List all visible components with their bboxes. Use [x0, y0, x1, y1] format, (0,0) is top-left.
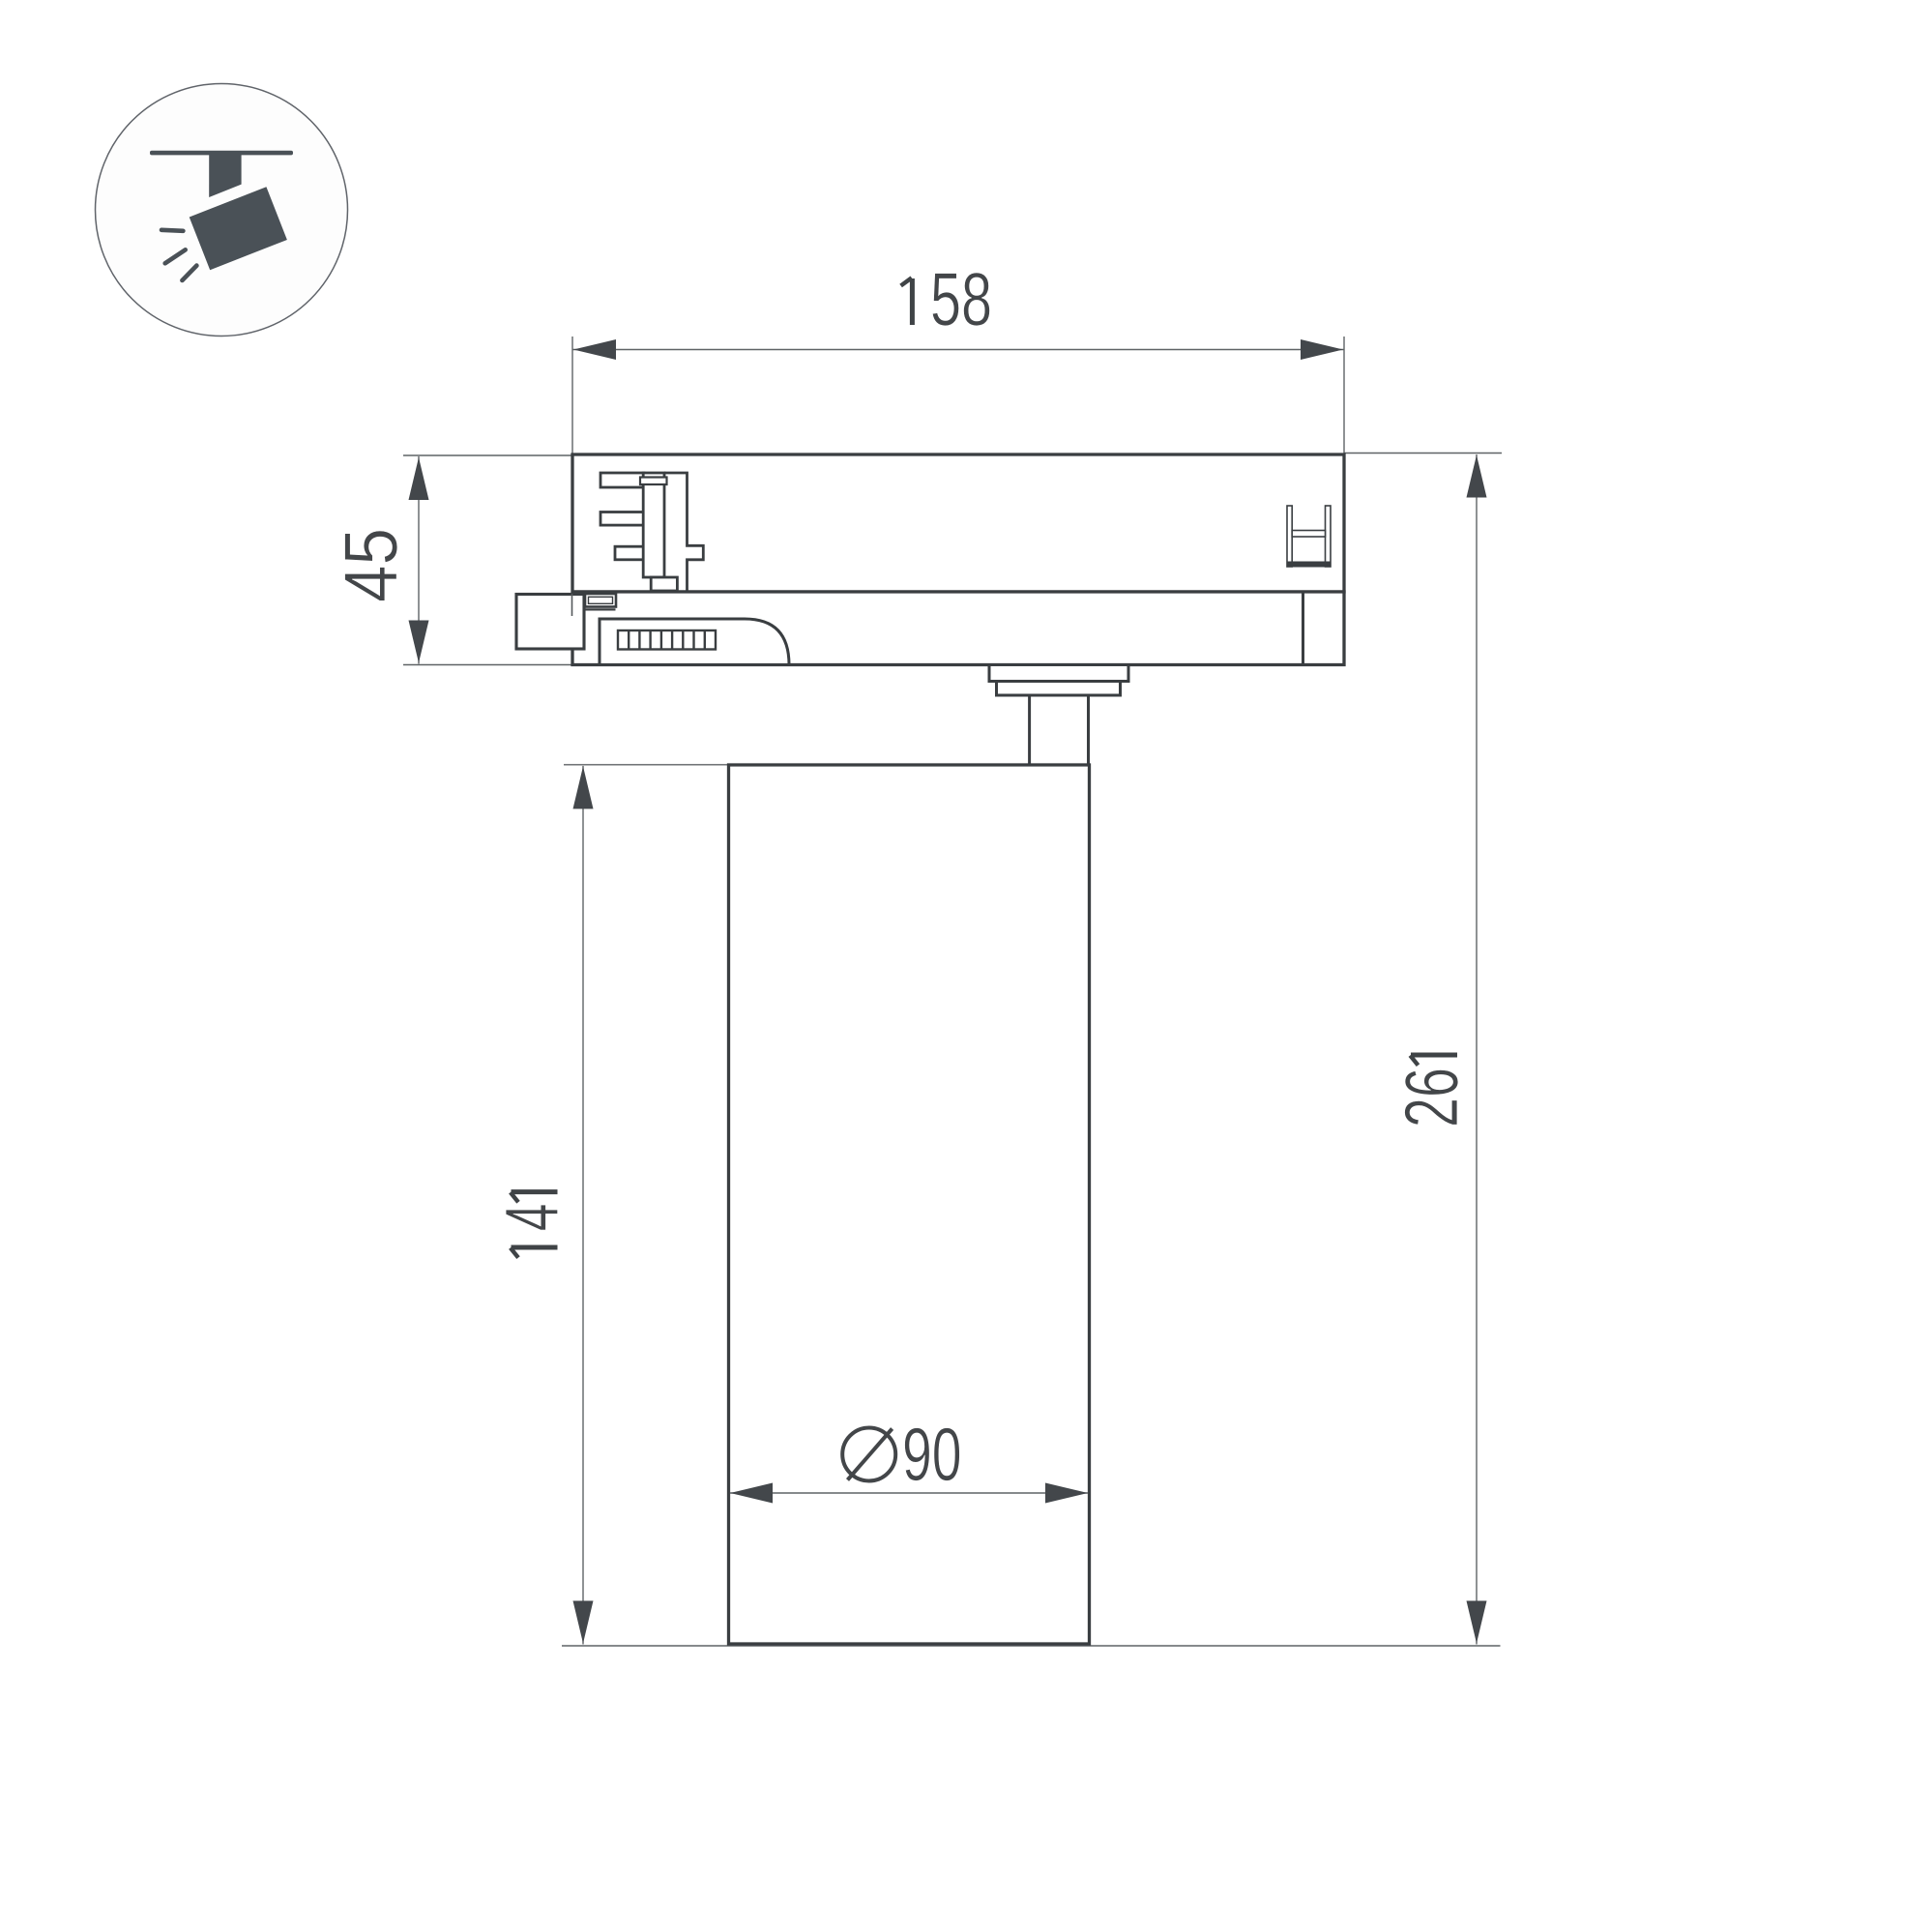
svg-text:4: 4: [489, 1204, 574, 1232]
svg-text:58: 58: [930, 256, 992, 341]
svg-text:45: 45: [328, 528, 413, 602]
svg-text:90: 90: [902, 1412, 962, 1497]
svg-text:26: 26: [1389, 1068, 1474, 1127]
